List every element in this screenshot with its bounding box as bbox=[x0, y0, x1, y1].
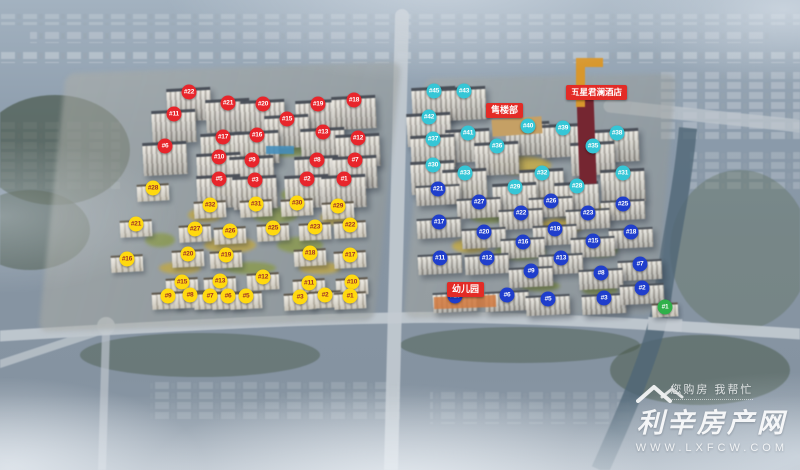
building-number-badge: #33 bbox=[458, 166, 473, 181]
building-number-badge: #28 bbox=[146, 181, 161, 196]
building-number-badge: #22 bbox=[343, 218, 358, 233]
building-number-badge: #32 bbox=[535, 166, 550, 181]
building-number-badge: #8 bbox=[310, 153, 325, 168]
kindergarten-banner: 幼儿园 bbox=[447, 282, 484, 297]
building-number-badge: #35 bbox=[586, 139, 601, 154]
building-number-badge: #12 bbox=[256, 270, 271, 285]
building-number-badge: #32 bbox=[203, 198, 218, 213]
building-number-badge: #26 bbox=[544, 194, 559, 209]
building-number-badge: #20 bbox=[477, 225, 492, 240]
building-number-badge: #23 bbox=[581, 206, 596, 221]
building-number-badge: #18 bbox=[303, 246, 318, 261]
building-number-badge: #13 bbox=[316, 125, 331, 140]
building-number-badge: #29 bbox=[508, 180, 523, 195]
building-number-badge: #17 bbox=[216, 130, 231, 145]
building-number-badge: #40 bbox=[521, 119, 536, 134]
building-number-badge: #29 bbox=[331, 199, 346, 214]
building-number-badge: #15 bbox=[586, 234, 601, 249]
building-number-badge: #16 bbox=[250, 128, 265, 143]
watermark-url: WWW.LXFCW.COM bbox=[636, 442, 788, 454]
building-number-badge: #12 bbox=[351, 131, 366, 146]
building-number-badge: #25 bbox=[616, 197, 631, 212]
building-number-badge: #5 bbox=[541, 292, 556, 307]
building-number-badge: #8 bbox=[183, 288, 198, 303]
building-number-badge: #22 bbox=[514, 206, 529, 221]
building-number-badge: #31 bbox=[616, 166, 631, 181]
building-number-badge: #12 bbox=[480, 251, 495, 266]
building-number-badge: #2 bbox=[635, 281, 650, 296]
building-number-badge: #9 bbox=[161, 289, 176, 304]
watermark-tagline: 您购房 我帮忙 bbox=[670, 381, 753, 400]
building-number-badge: #27 bbox=[188, 222, 203, 237]
building-number-badge: #6 bbox=[221, 289, 236, 304]
sales-office-banner: 售楼部 bbox=[486, 103, 523, 118]
building-number-badge: #23 bbox=[308, 220, 323, 235]
building-number-badge: #2 bbox=[300, 172, 315, 187]
building-number-badge: #8 bbox=[594, 266, 609, 281]
building-number-badge: #5 bbox=[239, 289, 254, 304]
building-number-badge: #39 bbox=[556, 121, 571, 136]
building-number-badge: #9 bbox=[245, 153, 260, 168]
building-number-badge: #13 bbox=[213, 274, 228, 289]
building-number-badge: #7 bbox=[348, 153, 363, 168]
watermark: 您购房 我帮忙 利辛房产网 WWW.LXFCW.COM bbox=[636, 381, 788, 454]
building-number-badge: #6 bbox=[158, 139, 173, 154]
building-number-badge: #17 bbox=[432, 215, 447, 230]
building-number-badge: #19 bbox=[219, 248, 234, 263]
building-number-badge: #18 bbox=[624, 225, 639, 240]
building-number-badge: #11 bbox=[167, 107, 182, 122]
building-number-badge: #21 bbox=[431, 182, 446, 197]
building-number-badge: #11 bbox=[433, 251, 448, 266]
building-number-badge: #15 bbox=[280, 112, 295, 127]
building-number-badge: #1 bbox=[343, 289, 358, 304]
building-number-badge: #25 bbox=[266, 221, 281, 236]
building-number-badge: #3 bbox=[248, 173, 263, 188]
hotel-banner: 五星君澜酒店 bbox=[566, 85, 627, 100]
building-number-badge: #16 bbox=[120, 252, 135, 267]
building-number-badge: #1 bbox=[337, 172, 352, 187]
building-number-badge: #1 bbox=[658, 300, 673, 315]
building-number-badge: #30 bbox=[426, 158, 441, 173]
building-number-badge: #37 bbox=[426, 132, 441, 147]
building-number-badge: #38 bbox=[610, 126, 625, 141]
building-number-badge: #19 bbox=[311, 97, 326, 112]
building-number-badge: #31 bbox=[249, 197, 264, 212]
building-number-badge: #6 bbox=[500, 288, 515, 303]
building-number-badge: #28 bbox=[570, 179, 585, 194]
building-number-badge: #10 bbox=[212, 150, 227, 165]
building-number-badge: #26 bbox=[223, 224, 238, 239]
building-number-badge: #30 bbox=[290, 196, 305, 211]
building-number-badge: #42 bbox=[422, 110, 437, 125]
building-number-badge: #5 bbox=[212, 172, 227, 187]
building-number-badge: #21 bbox=[129, 217, 144, 232]
aerial-masterplan-rendering: #22#21#20#19#18#11#15#17#16#13#12#6#10#9… bbox=[0, 0, 800, 470]
building-number-badge: #3 bbox=[597, 291, 612, 306]
building-number-badge: #11 bbox=[302, 276, 317, 291]
building-number-badge: #20 bbox=[181, 247, 196, 262]
building-number-badge: #19 bbox=[548, 222, 563, 237]
building-number-badge: #17 bbox=[343, 248, 358, 263]
building-number-badge: #9 bbox=[524, 264, 539, 279]
building-number-badge: #10 bbox=[345, 275, 360, 290]
building-number-badge: #13 bbox=[554, 251, 569, 266]
building-number-badge: #27 bbox=[472, 195, 487, 210]
building-number-badge: #2 bbox=[318, 288, 333, 303]
building-number-badge: #20 bbox=[256, 97, 271, 112]
building-number-badge: #18 bbox=[347, 93, 362, 108]
building-number-badge: #21 bbox=[221, 96, 236, 111]
building-number-badge: #36 bbox=[490, 139, 505, 154]
building-number-badge: #41 bbox=[461, 126, 476, 141]
watermark-site-name: 利辛房产网 bbox=[636, 401, 788, 440]
building-number-badge: #7 bbox=[633, 257, 648, 272]
building-number-badge: #45 bbox=[427, 84, 442, 99]
building-number-badge: #22 bbox=[182, 85, 197, 100]
building-number-badge: #3 bbox=[293, 290, 308, 305]
building-number-badge: #7 bbox=[203, 289, 218, 304]
building-number-badge: #43 bbox=[457, 84, 472, 99]
building-number-badge: #16 bbox=[516, 235, 531, 250]
